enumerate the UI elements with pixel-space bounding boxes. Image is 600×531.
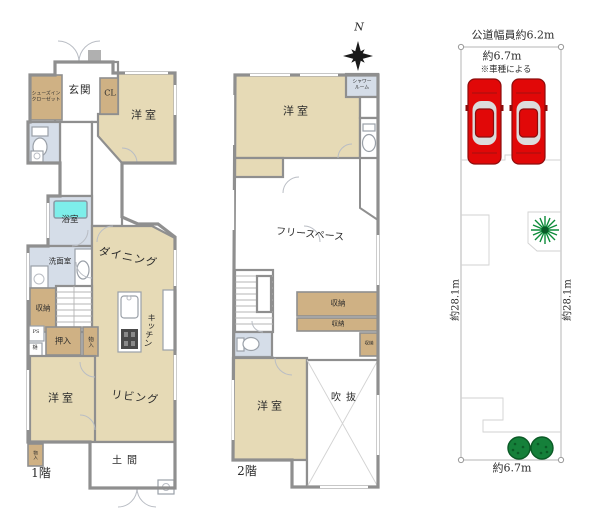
f2-label-bedroom-bottom: 洋室 bbox=[257, 401, 285, 414]
stove-icon bbox=[121, 329, 138, 349]
f2-label-storage-2: 収納 bbox=[332, 320, 345, 327]
tree-icon bbox=[508, 437, 530, 459]
site-label-frontage-bottom: 約6.7m bbox=[493, 463, 532, 476]
f2-label-shower: シャワー ルーム bbox=[352, 79, 371, 90]
washing-machine-icon bbox=[31, 266, 48, 288]
f2-label-storage-3: 収納 bbox=[365, 341, 374, 346]
f2-label-void: 吹抜 bbox=[331, 392, 361, 404]
site-label-depth-right: 約28.1m bbox=[562, 279, 574, 321]
f1-label-washroom: 洗面室 bbox=[49, 258, 72, 267]
porch-pillar bbox=[88, 50, 101, 62]
hall-1f bbox=[60, 122, 92, 196]
compass-north-label: N bbox=[354, 22, 364, 35]
floorplan-page: 玄関 シューズイン クローゼット CL 洋室 浴室 洗面室 ダイニング キッチン… bbox=[0, 0, 600, 531]
floorplan-drawing bbox=[0, 0, 600, 531]
boundary-marker bbox=[458, 44, 463, 49]
boundary-marker bbox=[458, 457, 463, 462]
f1-label-monoire-small: 物入 bbox=[32, 451, 37, 460]
f2-label-bedroom-top: 洋室 bbox=[283, 106, 311, 119]
f1-label-ps: PS bbox=[33, 330, 40, 336]
kitchen-sink-icon bbox=[121, 296, 138, 318]
boundary-marker bbox=[558, 457, 563, 462]
shrub-icon bbox=[531, 216, 559, 244]
f1-label-shoes-closet: シューズイン クローゼット bbox=[32, 91, 61, 102]
f1-label-monoire: 物入 bbox=[87, 337, 93, 348]
sink-icon bbox=[77, 261, 89, 279]
f1-label-doma: 土間 bbox=[112, 455, 142, 467]
f1-label-bedroom-bottom: 洋室 bbox=[48, 393, 76, 406]
f1-label-genkan: 玄関 bbox=[69, 84, 92, 96]
f1-label-storage: 収納 bbox=[36, 305, 51, 314]
f1-label-gutter: 樋 bbox=[32, 346, 37, 352]
site-label-road-width: 公道幅員約6.2m bbox=[472, 30, 555, 43]
tree-icon bbox=[531, 437, 553, 459]
site-plan bbox=[458, 44, 563, 462]
site-label-car-note: ※車種による bbox=[481, 66, 532, 76]
f2-label-storage-1: 収納 bbox=[331, 300, 346, 309]
car-icon bbox=[466, 79, 504, 164]
doma-door-arcs bbox=[118, 488, 156, 507]
f1-label-cl: CL bbox=[104, 88, 115, 97]
site-label-frontage-top: 約6.7m bbox=[483, 51, 522, 64]
f1-label-oshiire: 押入 bbox=[55, 336, 71, 345]
f2-title: 2階 bbox=[237, 465, 257, 479]
boundary-marker bbox=[558, 44, 563, 49]
toilet-icon bbox=[243, 338, 259, 351]
site-label-depth-left: 約28.1m bbox=[450, 279, 462, 321]
f1-label-bath: 浴室 bbox=[61, 216, 78, 226]
toilet-icon bbox=[363, 135, 376, 152]
f1-label-bedroom-top: 洋室 bbox=[131, 110, 159, 123]
car-icon bbox=[510, 79, 548, 164]
f1-title: 1階 bbox=[31, 467, 51, 481]
compass-icon bbox=[343, 41, 373, 71]
